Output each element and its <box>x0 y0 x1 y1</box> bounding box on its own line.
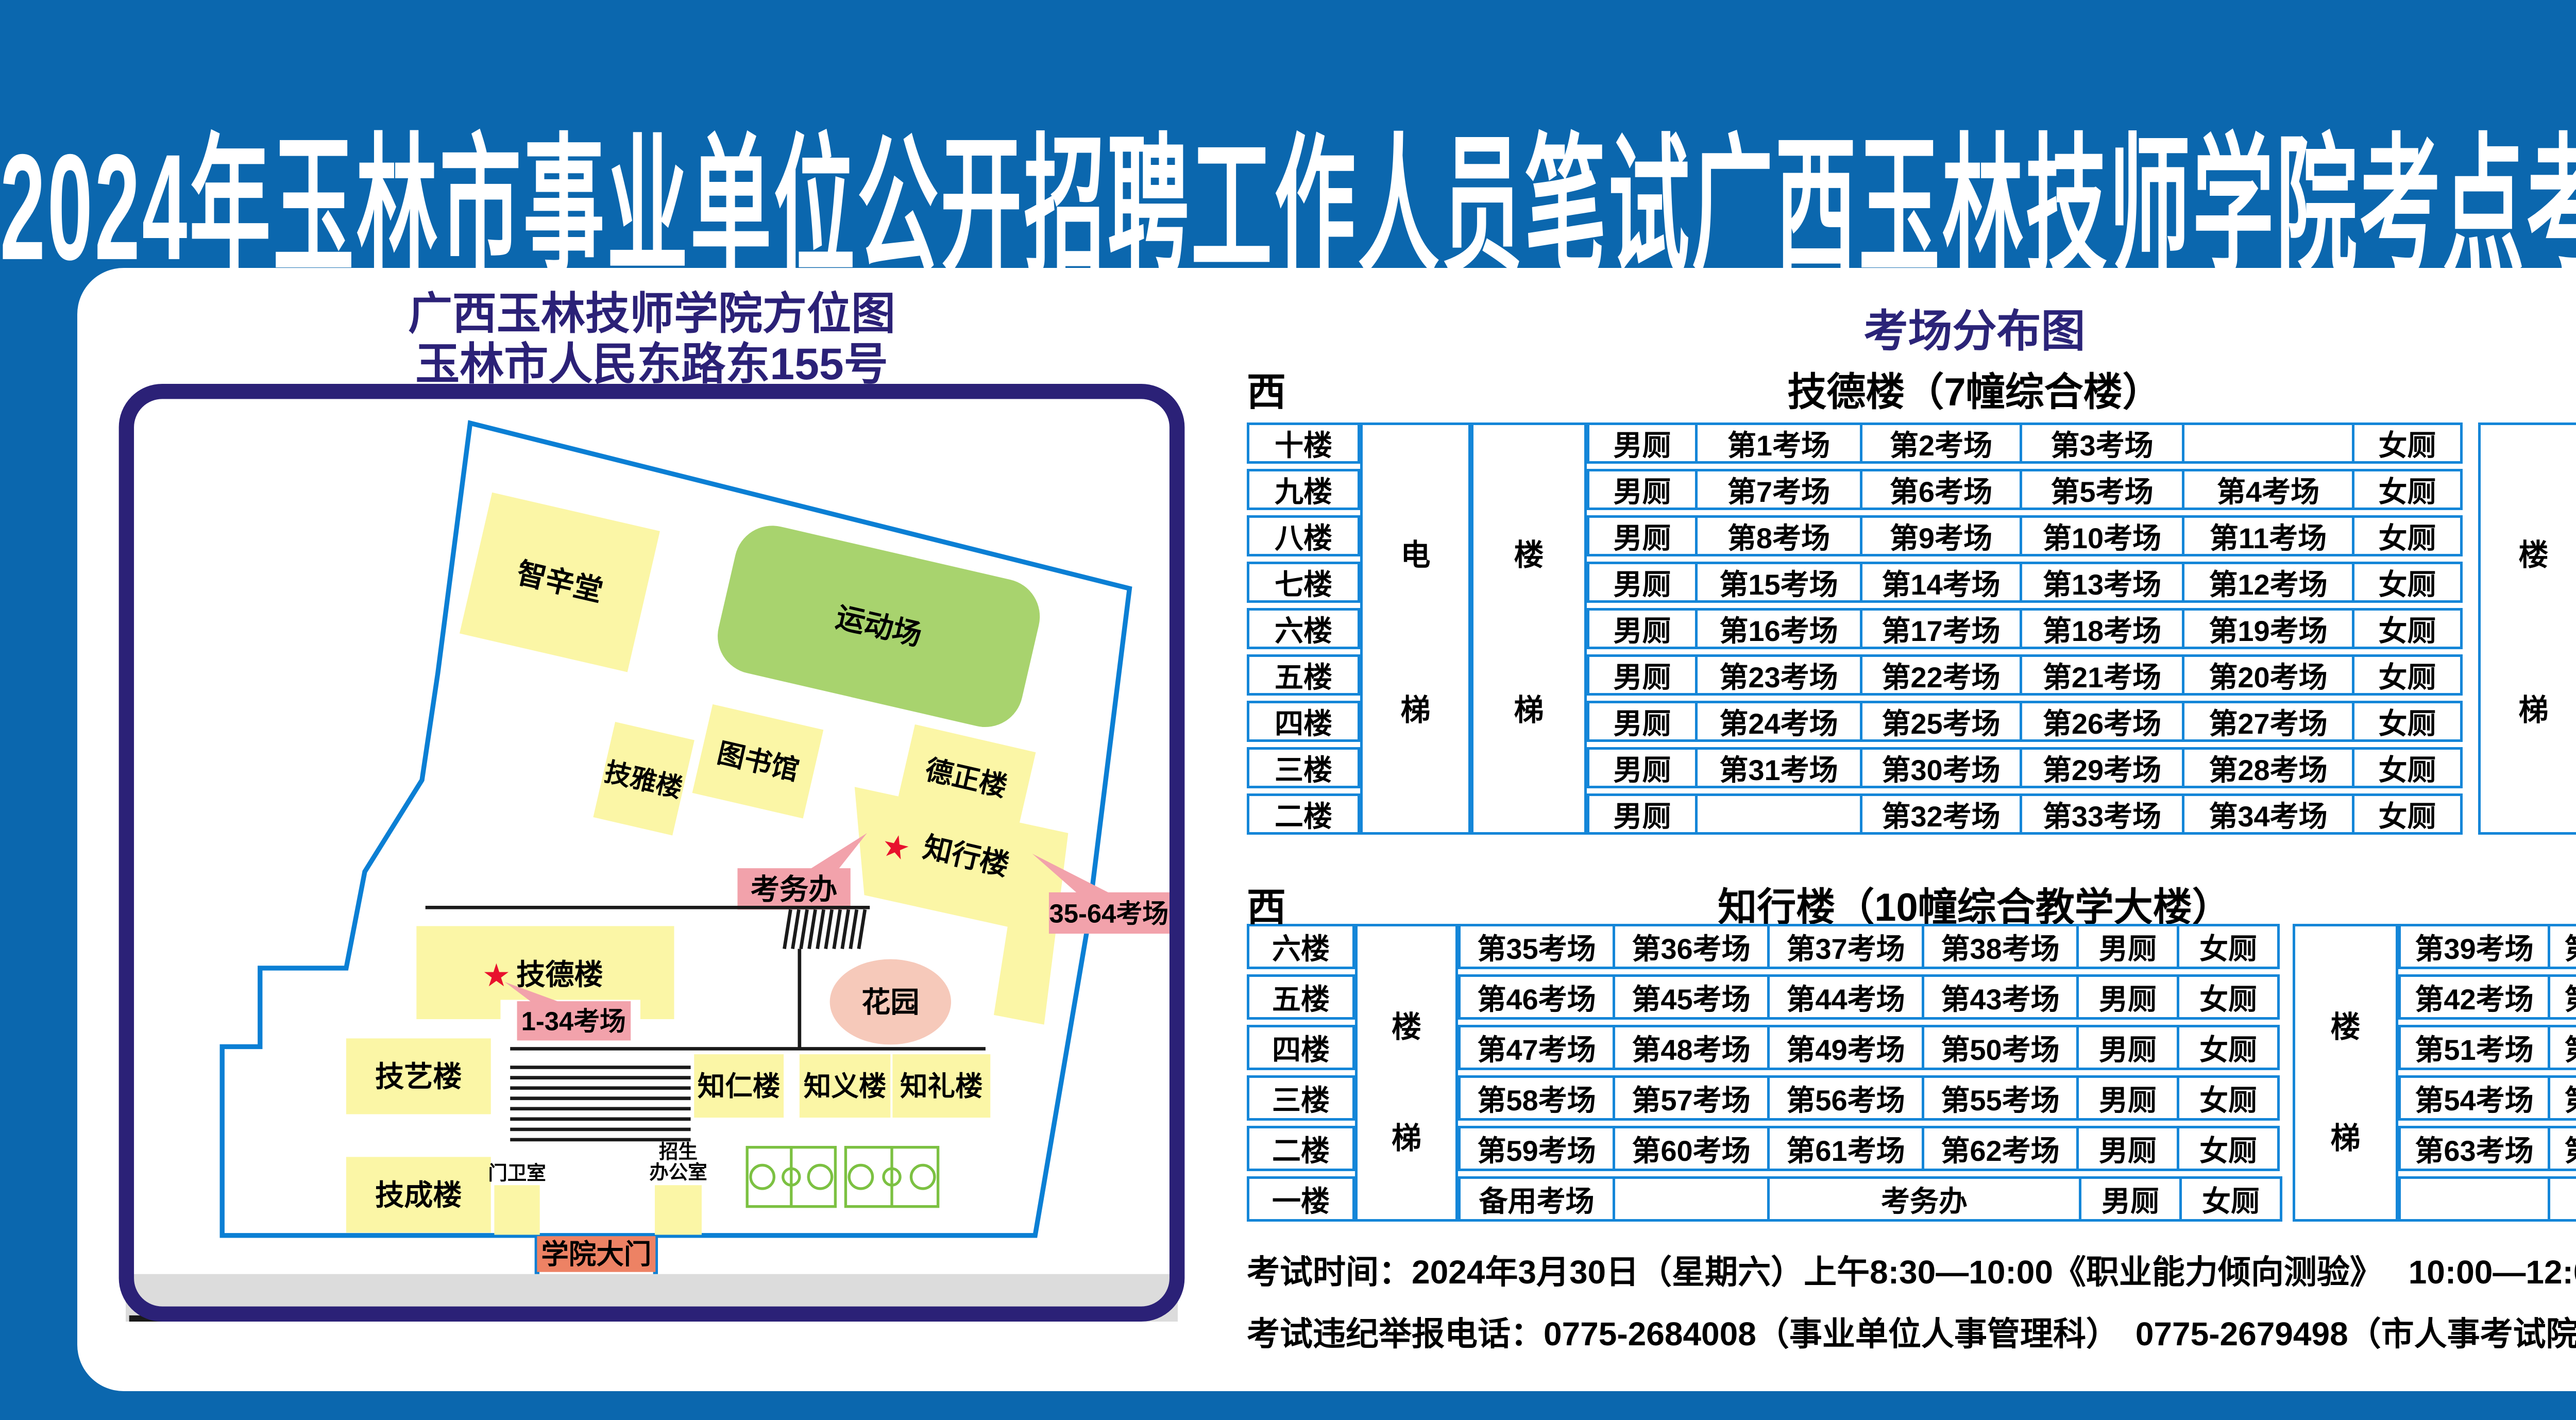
womens-toilet-cell: 女厕 <box>2177 924 2280 969</box>
room-cell: 第12考场 <box>2182 562 2354 603</box>
room-cell: 第9考场 <box>1860 515 2022 556</box>
room-cell: 第1考场 <box>1695 422 1862 464</box>
room-cell: 第13考场 <box>2020 562 2184 603</box>
table2: 六楼 五楼 四楼 三楼 二楼 一楼 楼 梯 第35考场 第36考场 第37考场 … <box>1247 924 2576 1222</box>
room-cell: 第7考场 <box>1695 469 1862 510</box>
mens-toilet-cell: 男厕 <box>1587 422 1698 464</box>
garden: 花园 <box>830 959 951 1045</box>
table-row: 第39考场 第40考场 <box>2398 924 2576 969</box>
room-cell: 第60考场 <box>1613 1126 1770 1171</box>
room-cell: 第18考场 <box>2020 608 2184 649</box>
callout-rooms-35-64: 35-64考场 <box>1032 854 1170 934</box>
svg-text:学院大门: 学院大门 <box>541 1240 651 1270</box>
room-cell <box>2182 422 2354 464</box>
svg-text:办公室: 办公室 <box>649 1161 707 1183</box>
table-row: 男厕 第16考场 第17考场 第18考场 第19考场 女厕 <box>1587 608 2463 649</box>
callout-exam-office: 考务办 <box>737 833 867 909</box>
room-cell: 第37考场 <box>1767 924 1924 969</box>
room-cell: 第56考场 <box>1767 1075 1924 1121</box>
svg-text:35-64考场: 35-64考场 <box>1049 899 1169 928</box>
womens-toilet-cell: 女厕 <box>2352 515 2463 556</box>
table1: 十楼 九楼 八楼 七楼 六楼 五楼 四楼 三楼 二楼 电 梯 楼 梯 男厕 <box>1247 422 2576 835</box>
room-cell: 第61考场 <box>1767 1126 1924 1171</box>
floor-label: 三楼 <box>1247 1075 1355 1121</box>
floor-label: 八楼 <box>1247 515 1360 556</box>
room-cell: 第4考场 <box>2182 469 2354 510</box>
room-cell: 第16考场 <box>1695 608 1862 649</box>
room-cell: 第63考场 <box>2398 1126 2550 1171</box>
svg-text:知仁楼: 知仁楼 <box>698 1071 780 1102</box>
table-row: 男厕 第32考场 第33考场 第34考场 女厕 <box>1587 793 2463 835</box>
table2-floor-column: 六楼 五楼 四楼 三楼 二楼 一楼 <box>1247 924 1355 1222</box>
svg-text:知礼楼: 知礼楼 <box>900 1071 982 1102</box>
floor-label: 十楼 <box>1247 422 1360 464</box>
room-cell: 第11考场 <box>2182 515 2354 556</box>
room-cell: 第27考场 <box>2182 701 2354 742</box>
building-zhiyilou: 知义楼 <box>800 1054 891 1118</box>
womens-toilet-cell: 女厕 <box>2177 1126 2280 1171</box>
table-row: 第42考场 第41考场 <box>2398 974 2576 1020</box>
floor-label: 五楼 <box>1247 974 1355 1020</box>
table-row: 第58考场 第57考场 第56考场 第55考场 男厕 女厕 <box>1458 1075 2282 1121</box>
room-cell: 第29考场 <box>2020 747 2184 788</box>
table-row: 第47考场 第48考场 第49考场 第50考场 男厕 女厕 <box>1458 1025 2282 1070</box>
floor-label: 二楼 <box>1247 1126 1355 1171</box>
room-cell: 第53考场 <box>2548 1075 2576 1121</box>
svg-text:技成楼: 技成楼 <box>375 1179 462 1211</box>
floor-label: 六楼 <box>1247 608 1360 649</box>
table-row: 男厕 第31考场 第30考场 第29考场 第28考场 女厕 <box>1587 747 2463 788</box>
room-cell: 第48考场 <box>1613 1025 1770 1070</box>
table2-stairs-west: 楼 梯 <box>1355 924 1458 1222</box>
table2-stairs-east: 楼 梯 <box>2293 924 2398 1222</box>
floor-label: 一楼 <box>1247 1176 1355 1222</box>
room-cell: 第33考场 <box>2020 793 2184 835</box>
room-cell: 第38考场 <box>1922 924 2079 969</box>
room-cell: 第28考场 <box>2182 747 2354 788</box>
table1-building-name: 技德楼（7幢综合楼） <box>1247 360 2576 417</box>
table1-header: 西 技德楼（7幢综合楼） 东 <box>1247 364 2576 413</box>
room-cell: 第46考场 <box>1458 974 1615 1020</box>
room-cell <box>1695 793 1862 835</box>
womens-toilet-cell: 女厕 <box>2352 562 2463 603</box>
room-cell: 第42考场 <box>2398 974 2550 1020</box>
floor-label: 三楼 <box>1247 747 1360 788</box>
room-cell: 第49考场 <box>1767 1025 1924 1070</box>
college-gate: 学院大门 <box>537 1236 655 1274</box>
womens-toilet-cell: 女厕 <box>2352 747 2463 788</box>
table-row: 男厕 第15考场 第14考场 第13考场 第12考场 女厕 <box>1587 562 2463 603</box>
floor-label: 五楼 <box>1247 654 1360 696</box>
backup-room-cell: 备用考场 <box>1458 1176 1615 1222</box>
table-row: 男厕 第24考场 第25考场 第26考场 第27考场 女厕 <box>1587 701 2463 742</box>
building-gatehouse: 门卫室 <box>488 1162 546 1235</box>
mens-toilet-cell: 男厕 <box>1587 701 1698 742</box>
room-cell: 第58考场 <box>1458 1075 1615 1121</box>
table1-stairs-west: 楼 梯 <box>1471 422 1587 835</box>
building-zhirenlou: 知仁楼 <box>694 1054 784 1118</box>
room-cell: 第57考场 <box>1613 1075 1770 1121</box>
table-row: 第35考场 第36考场 第37考场 第38考场 男厕 女厕 <box>1458 924 2282 969</box>
room-cell: 第24考场 <box>1695 701 1862 742</box>
table-row: 男厕 第8考场 第9考场 第10考场 第11考场 女厕 <box>1587 515 2463 556</box>
room-cell: 第8考场 <box>1695 515 1862 556</box>
mens-toilet-cell: 男厕 <box>1587 793 1698 835</box>
womens-toilet-cell: 女厕 <box>2352 608 2463 649</box>
room-cell: 第21考场 <box>2020 654 2184 696</box>
compass-west: 西 <box>1247 360 1286 417</box>
room-cell: 第5考场 <box>2020 469 2184 510</box>
building-admissions-office: 招生 办公室 <box>649 1141 707 1235</box>
table2-header: 西 知行楼（10幢综合教学大楼） 东 <box>1247 879 2576 928</box>
room-cell: 第26考场 <box>2020 701 2184 742</box>
mens-toilet-cell: 男厕 <box>1587 654 1698 696</box>
room-cell: 第36考场 <box>1613 924 1770 969</box>
table-row <box>2398 1176 2576 1222</box>
floor-label: 七楼 <box>1247 562 1360 603</box>
mens-toilet-cell: 男厕 <box>1587 515 1698 556</box>
poster-page: 2024年玉林市事业单位公开招聘工作人员笔试广西玉林技师学院考点考场示意图 广西… <box>0 0 2576 1420</box>
table-row: 第46考场 第45考场 第44考场 第43考场 男厕 女厕 <box>1458 974 2282 1020</box>
mens-toilet-cell: 男厕 <box>2076 974 2179 1020</box>
room-cell: 第51考场 <box>2398 1025 2550 1070</box>
room-cell: 第45考场 <box>1613 974 1770 1020</box>
building-library: 图书馆 <box>692 704 824 819</box>
womens-toilet-cell: 女厕 <box>2352 793 2463 835</box>
table-row: 男厕 第23考场 第22考场 第21考场 第20考场 女厕 <box>1587 654 2463 696</box>
building-zhixintang: 智辛堂 <box>460 493 660 672</box>
womens-toilet-cell: 女厕 <box>2352 701 2463 742</box>
svg-text:考务办: 考务办 <box>751 873 837 905</box>
room-cell: 第14考场 <box>1860 562 2022 603</box>
table-row: 第51考场 第52考场 <box>2398 1025 2576 1070</box>
building-zhililou: 知礼楼 <box>892 1054 990 1118</box>
floor-label: 二楼 <box>1247 793 1360 835</box>
room-cell: 第54考场 <box>2398 1075 2550 1121</box>
womens-toilet-cell: 女厕 <box>2177 1075 2280 1121</box>
svg-text:技德楼: 技德楼 <box>516 958 603 991</box>
floor-label: 四楼 <box>1247 1025 1355 1070</box>
svg-text:1-34考场: 1-34考场 <box>521 1006 626 1036</box>
mens-toilet-cell: 男厕 <box>1587 747 1698 788</box>
room-cell: 第34考场 <box>2182 793 2354 835</box>
room-cell: 第2考场 <box>1860 422 2022 464</box>
table-row-floor1: 备用考场 考务办 男厕 女厕 <box>1458 1176 2282 1222</box>
room-cell: 第32考场 <box>1860 793 2022 835</box>
room-cell: 第55考场 <box>1922 1075 2079 1121</box>
floor-label: 四楼 <box>1247 701 1360 742</box>
building-sports-field: 运动场 <box>710 518 1047 735</box>
room-cell: 第35考场 <box>1458 924 1615 969</box>
room-cell: 第22考场 <box>1860 654 2022 696</box>
svg-text:知义楼: 知义楼 <box>804 1071 886 1102</box>
table1-stairs-east: 楼 梯 <box>2478 422 2576 835</box>
room-cell: 第17考场 <box>1860 608 2022 649</box>
table-row: 第59考场 第60考场 第61考场 第62考场 男厕 女厕 <box>1458 1126 2282 1171</box>
table-row: 第54考场 第53考场 <box>2398 1075 2576 1121</box>
room-cell: 第62考场 <box>1922 1126 2079 1171</box>
svg-text:花园: 花园 <box>861 986 919 1019</box>
mens-toilet-cell: 男厕 <box>2076 1075 2179 1121</box>
womens-toilet-cell: 女厕 <box>2177 974 2280 1020</box>
table-row: 男厕 第7考场 第6考场 第5考场 第4考场 女厕 <box>1587 469 2463 510</box>
building-jichenglou: 技成楼 <box>346 1157 491 1232</box>
svg-text:门卫室: 门卫室 <box>488 1162 546 1184</box>
room-cell: 第10考场 <box>2020 515 2184 556</box>
room-cell: 第59考场 <box>1458 1126 1615 1171</box>
womens-toilet-cell: 女厕 <box>2352 422 2463 464</box>
room-cell: 第15考场 <box>1695 562 1862 603</box>
svg-text:技艺楼: 技艺楼 <box>375 1060 462 1093</box>
room-cell: 第47考场 <box>1458 1025 1615 1070</box>
room-cell: 第19考场 <box>2182 608 2354 649</box>
table1-floor-column: 十楼 九楼 八楼 七楼 六楼 五楼 四楼 三楼 二楼 <box>1247 422 1360 835</box>
womens-toilet-cell: 女厕 <box>2177 1025 2280 1070</box>
table2-rows-left: 第35考场 第36考场 第37考场 第38考场 男厕 女厕 第46考场 第45考… <box>1458 924 2282 1222</box>
campus-map: 人民东路 智辛堂 运动场 技雅楼 图书馆 德正楼 <box>118 384 1185 1322</box>
room-cell: 第3考场 <box>2020 422 2184 464</box>
room-cell: 第31考场 <box>1695 747 1862 788</box>
room-cell: 第41考场 <box>2548 974 2576 1020</box>
room-cell: 第43考场 <box>1922 974 2079 1020</box>
womens-toilet-cell: 女厕 <box>2179 1176 2282 1222</box>
exam-time-info: 考试时间：2024年3月30日（星期六）上午8:30—10:00《职业能力倾向测… <box>1247 1246 2576 1293</box>
room-cell: 第50考场 <box>1922 1025 2079 1070</box>
room-cell: 第6考场 <box>1860 469 2022 510</box>
mens-toilet-cell: 男厕 <box>2076 1126 2179 1171</box>
room-cell: 第52考场 <box>2548 1025 2576 1070</box>
compass-west: 西 <box>1247 875 1286 932</box>
room-cell: 第30考场 <box>1860 747 2022 788</box>
building-jiyilou: 技艺楼 <box>346 1038 491 1114</box>
star-icon: ★ <box>482 958 511 993</box>
svg-text:招生: 招生 <box>659 1141 698 1162</box>
mens-toilet-cell: 男厕 <box>2076 1025 2179 1070</box>
room-cell: 第20考场 <box>2182 654 2354 696</box>
building-jiyalou: 技雅楼 <box>593 722 694 836</box>
map-title-line2: 玉林市人民东路东155号 <box>118 328 1185 392</box>
mens-toilet-cell: 男厕 <box>1587 562 1698 603</box>
mens-toilet-cell: 男厕 <box>2076 924 2179 969</box>
room-cell: 第39考场 <box>2398 924 2550 969</box>
table-row: 男厕 第1考场 第2考场 第3考场 女厕 <box>1587 422 2463 464</box>
basketball-courts <box>747 1147 938 1207</box>
report-phone-info: 考试违纪举报电话：0775-2684008（事业单位人事管理科） 0775-26… <box>1247 1308 2576 1355</box>
floor-label: 九楼 <box>1247 469 1360 510</box>
empty-cell <box>2548 1176 2576 1222</box>
mens-toilet-cell: 男厕 <box>1587 608 1698 649</box>
table1-rows: 男厕 第1考场 第2考场 第3考场 女厕 男厕 第7考场 第6考场 第5考场 第… <box>1587 422 2463 835</box>
mens-toilet-cell: 男厕 <box>1587 469 1698 510</box>
table2-rows-right: 第39考场 第40考场 第42考场 第41考场 第51考场 第52考场 第54考… <box>2398 924 2576 1222</box>
content-panel: 广西玉林技师学院方位图 玉林市人民东路东155号 人民东路 智辛堂 <box>77 268 2576 1391</box>
room-cell: 第25考场 <box>1860 701 2022 742</box>
room-cell: 第40考场 <box>2548 924 2576 969</box>
mens-toilet-cell: 男厕 <box>2079 1176 2182 1222</box>
empty-cell <box>2398 1176 2550 1222</box>
table-row: 第63考场 第64考场 <box>2398 1126 2576 1171</box>
room-cell: 第23考场 <box>1695 654 1862 696</box>
womens-toilet-cell: 女厕 <box>2352 654 2463 696</box>
womens-toilet-cell: 女厕 <box>2352 469 2463 510</box>
table1-elevator-west: 电 梯 <box>1360 422 1471 835</box>
exam-office-cell: 考务办 <box>1767 1176 2081 1222</box>
room-cell: 第44考场 <box>1767 974 1924 1020</box>
room-cell: 第64考场 <box>2548 1126 2576 1171</box>
distribution-title: 考场分布图 <box>1247 295 2576 359</box>
empty-cell <box>1613 1176 1770 1222</box>
